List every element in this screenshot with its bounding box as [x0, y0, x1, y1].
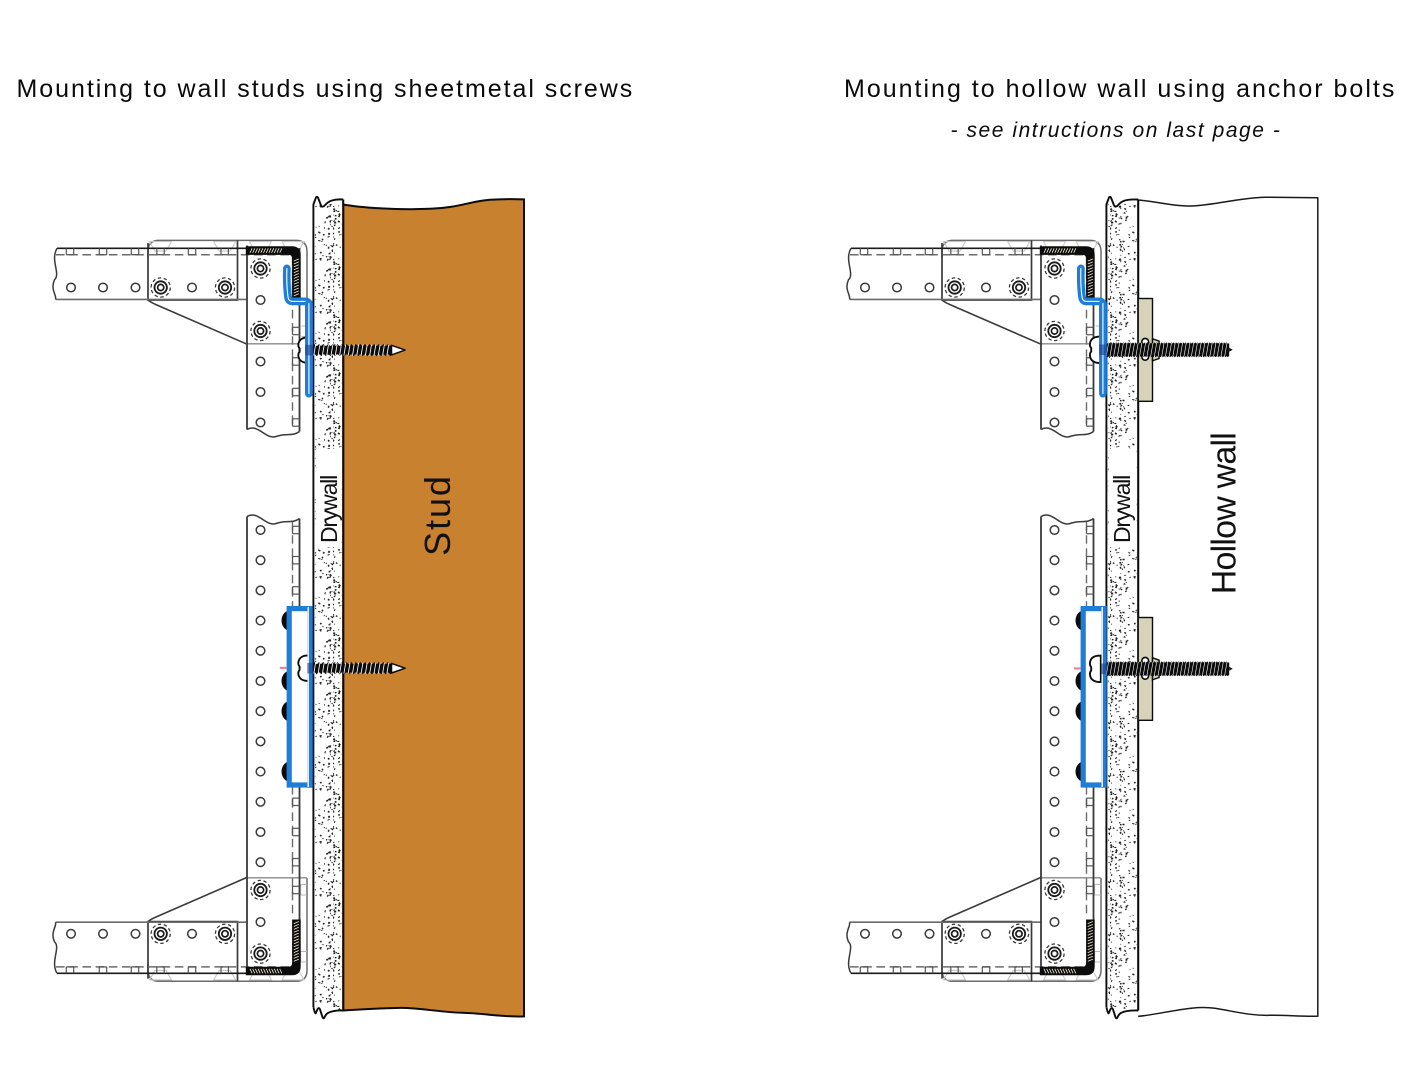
svg-text:Drywall: Drywall	[316, 476, 342, 543]
svg-text:Stud: Stud	[417, 474, 458, 556]
svg-text:Mounting to hollow wall using: Mounting to hollow wall using anchor bol…	[844, 75, 1396, 103]
svg-text:Hollow wall: Hollow wall	[1205, 433, 1243, 594]
svg-text:Drywall: Drywall	[1109, 476, 1135, 543]
svg-text:Mounting to wall studs using s: Mounting to wall studs using sheetmetal …	[17, 75, 635, 103]
svg-text:- see intructions on last page: - see intructions on last page -	[951, 119, 1282, 142]
